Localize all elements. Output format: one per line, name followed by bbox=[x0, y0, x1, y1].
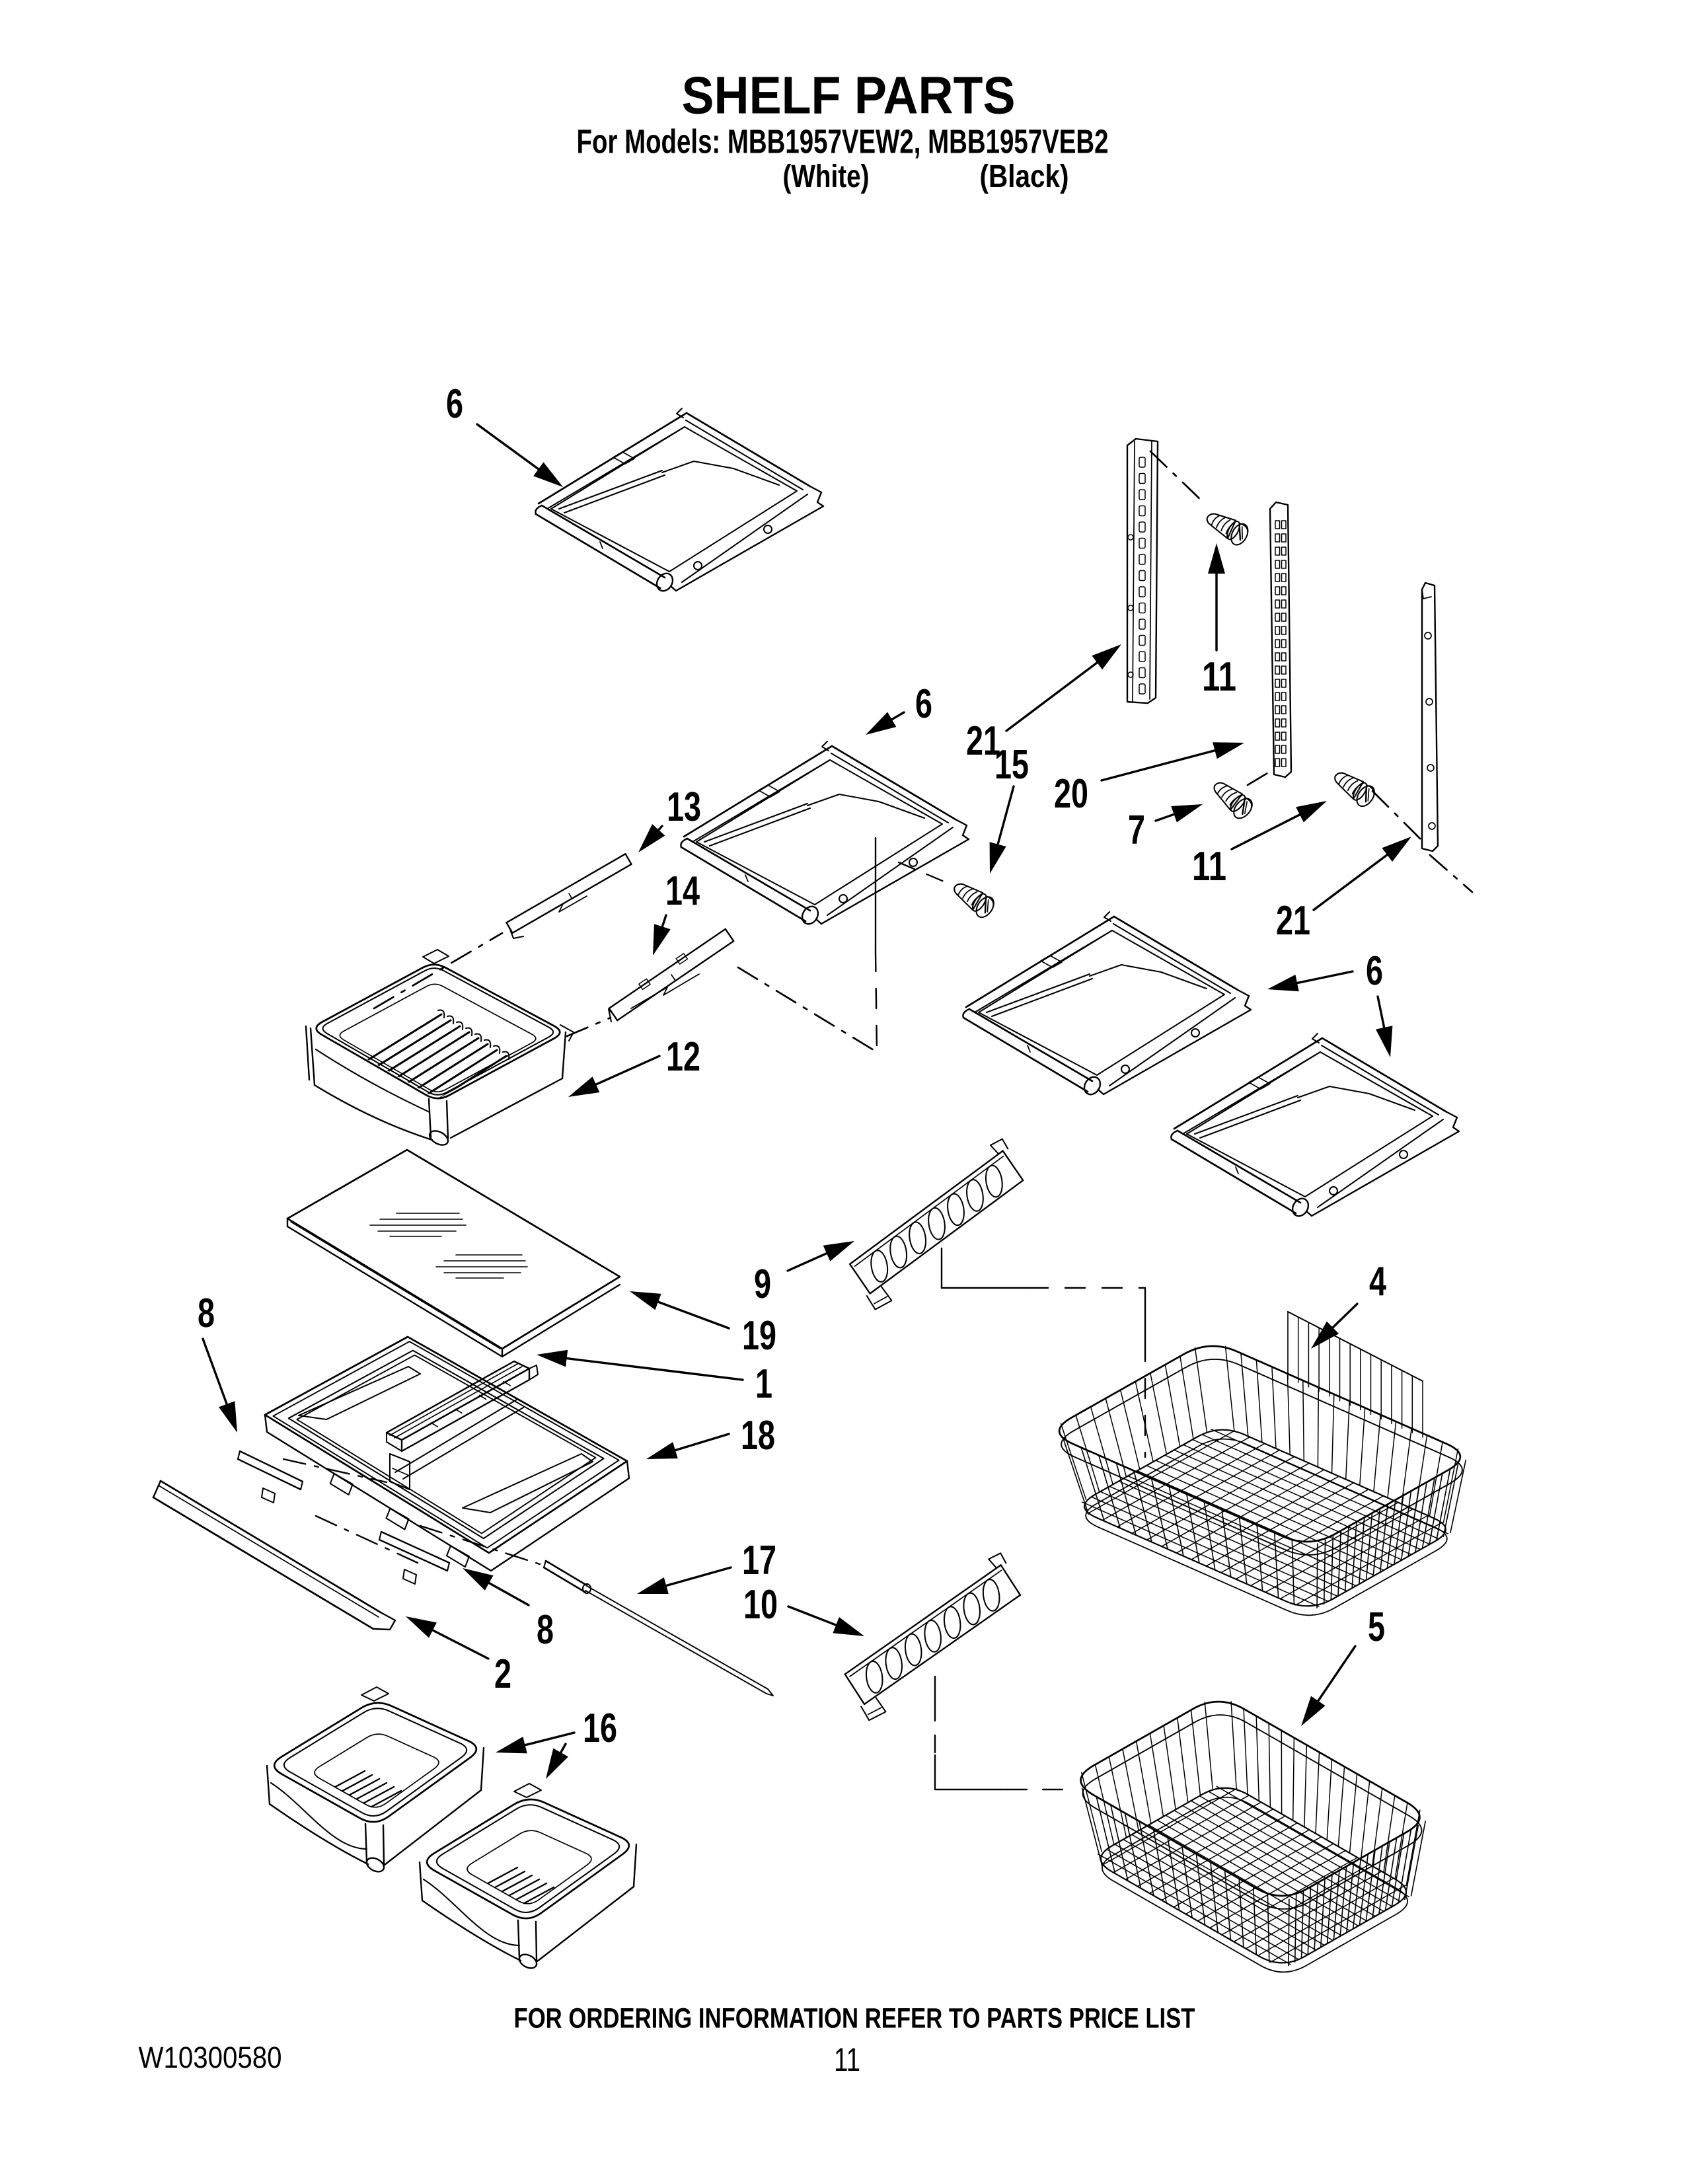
svg-text:1: 1 bbox=[755, 1361, 772, 1407]
svg-text:6: 6 bbox=[446, 381, 463, 427]
svg-text:18: 18 bbox=[741, 1413, 775, 1458]
svg-text:21: 21 bbox=[1276, 898, 1310, 944]
svg-text:5: 5 bbox=[1368, 1604, 1385, 1650]
svg-text:FOR ORDERING INFORMATION REFER: FOR ORDERING INFORMATION REFER TO PARTS … bbox=[514, 2002, 1195, 2034]
svg-text:14: 14 bbox=[665, 868, 700, 914]
svg-text:2: 2 bbox=[494, 1651, 511, 1697]
svg-text:(White): (White) bbox=[783, 159, 870, 194]
svg-text:11: 11 bbox=[1202, 654, 1236, 700]
svg-text:W10300580: W10300580 bbox=[139, 2041, 282, 2074]
svg-text:10: 10 bbox=[743, 1582, 778, 1628]
svg-text:9: 9 bbox=[754, 1261, 771, 1307]
svg-text:12: 12 bbox=[666, 1034, 700, 1080]
svg-text:17: 17 bbox=[742, 1538, 776, 1583]
svg-text:7: 7 bbox=[1128, 808, 1145, 853]
svg-text:6: 6 bbox=[915, 681, 932, 727]
svg-text:11: 11 bbox=[834, 2041, 860, 2078]
svg-text:11: 11 bbox=[1192, 844, 1226, 889]
svg-text:For Models: MBB1957VEW2, MBB19: For Models: MBB1957VEW2, MBB1957VEB2 bbox=[577, 122, 1109, 160]
svg-text:8: 8 bbox=[537, 1607, 554, 1653]
svg-text:8: 8 bbox=[198, 1291, 215, 1336]
svg-text:20: 20 bbox=[1054, 771, 1088, 817]
svg-text:19: 19 bbox=[742, 1313, 776, 1359]
svg-text:15: 15 bbox=[994, 742, 1029, 788]
svg-text:13: 13 bbox=[667, 784, 701, 830]
svg-text:4: 4 bbox=[1369, 1259, 1386, 1304]
svg-text:16: 16 bbox=[583, 1706, 617, 1751]
svg-text:6: 6 bbox=[1366, 948, 1383, 994]
svg-text:(Black): (Black) bbox=[980, 159, 1069, 194]
svg-text:SHELF PARTS: SHELF PARTS bbox=[682, 66, 1016, 125]
